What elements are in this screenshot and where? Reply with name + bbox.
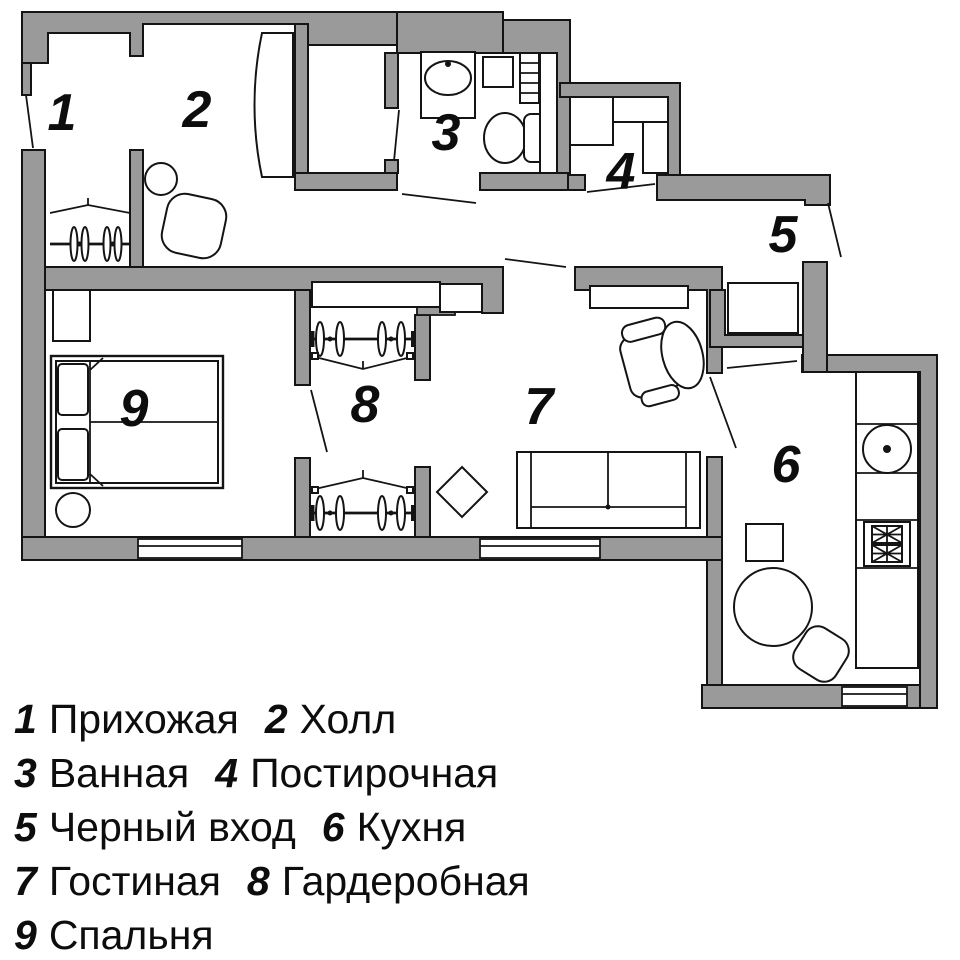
room-number-label: 9 [120, 380, 149, 438]
wall [397, 12, 503, 53]
wall [385, 53, 398, 108]
legend-row: 5Черный вход6Кухня [14, 800, 944, 854]
door-swing [710, 377, 736, 448]
room-number-label: 8 [351, 376, 380, 434]
wardrobe-icon [53, 290, 90, 341]
side-table-icon [437, 467, 487, 517]
wall [295, 458, 310, 537]
chair-icon [158, 190, 229, 261]
wall [415, 315, 430, 380]
legend-label: Ванная [49, 750, 189, 796]
room-number-label: 4 [606, 143, 636, 201]
kitchen-sink-icon [863, 425, 911, 473]
sofa-icon [517, 452, 700, 528]
wall [295, 173, 397, 190]
legend-label: Кухня [357, 804, 467, 850]
washer-icon [483, 57, 513, 87]
back-door-swing [828, 203, 841, 257]
door-swing [394, 110, 399, 161]
wall [480, 173, 568, 190]
wardrobe-shelf-icon [312, 282, 440, 307]
wall [707, 457, 722, 687]
door-swing [402, 194, 476, 203]
chair-icon [746, 524, 783, 561]
stove-icon [864, 522, 910, 566]
legend-label: Спальня [49, 912, 214, 958]
coat-closet-icon [50, 198, 130, 261]
sideboard-icon [590, 286, 688, 308]
hanger-rail-icon [311, 470, 415, 530]
alcove-shelf [440, 284, 482, 312]
wall [657, 175, 830, 205]
entry-door-swing [26, 95, 33, 148]
room-number-label: 6 [772, 436, 802, 494]
wall [22, 150, 45, 537]
wall [130, 150, 143, 267]
legend-number: 7 [14, 858, 37, 904]
hanger-rail-icon [311, 322, 415, 369]
legend-label: Постирочная [250, 750, 498, 796]
stool-icon [145, 163, 177, 195]
legend-label: Прихожая [49, 696, 239, 742]
room-number-label: 3 [432, 104, 461, 162]
armchair-icon [614, 308, 712, 410]
toilet-icon [484, 113, 545, 163]
wall [22, 537, 722, 560]
door-swing [727, 361, 797, 368]
wall [415, 467, 430, 537]
legend-label: Холл [300, 696, 397, 742]
legend-number: 8 [247, 858, 270, 904]
legend-number: 3 [14, 750, 37, 796]
legend: 1Прихожая2Холл 3Ванная4Постирочная 5Черн… [14, 692, 944, 960]
dining-table-icon [734, 568, 812, 646]
wall [568, 175, 585, 190]
wall [22, 12, 397, 63]
wall [803, 262, 827, 372]
room-number-label: 1 [48, 84, 77, 142]
legend-label: Гостиная [49, 858, 221, 904]
floor-plan-page: 1 2 3 4 5 6 7 8 9 1Прихожая2Холл 3Ванная… [0, 0, 960, 960]
legend-label: Черный вход [49, 804, 296, 850]
legend-row: 1Прихожая2Холл [14, 692, 944, 746]
legend-number: 6 [322, 804, 345, 850]
hall-wardrobe-icon [255, 33, 294, 177]
wall [295, 290, 310, 385]
wall [22, 63, 31, 95]
legend-number: 4 [215, 750, 238, 796]
legend-number: 2 [265, 696, 288, 742]
legend-number: 5 [14, 804, 37, 850]
window-icon [480, 539, 600, 558]
legend-number: 9 [14, 912, 37, 958]
shelving-icon [520, 53, 539, 103]
room-number-label: 7 [525, 378, 556, 436]
legend-row: 7Гостиная8Гардеробная [14, 854, 944, 908]
window-icon [138, 539, 242, 558]
legend-row: 9Спальня [14, 908, 944, 960]
door-swing [505, 259, 566, 267]
room-number-label: 5 [769, 206, 799, 264]
legend-label: Гардеробная [282, 858, 530, 904]
wall [295, 24, 308, 173]
duct-shaft [540, 53, 557, 173]
kitchen-counter-icon [856, 372, 918, 668]
wall [385, 160, 398, 173]
legend-number: 1 [14, 696, 37, 742]
room-number-label: 2 [182, 81, 212, 139]
cabinet-icon [728, 283, 798, 333]
door-swing [311, 390, 327, 452]
stool-icon [56, 493, 90, 527]
legend-row: 3Ванная4Постирочная [14, 746, 944, 800]
